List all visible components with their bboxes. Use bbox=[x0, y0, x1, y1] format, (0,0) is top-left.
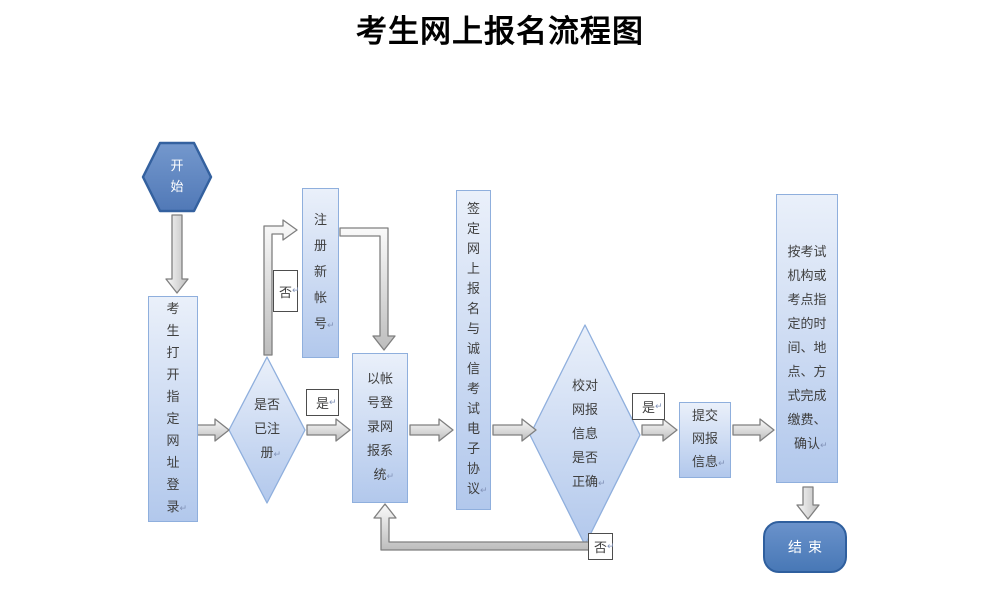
arrow-start-to-open-site bbox=[166, 215, 188, 293]
arrow-yes-to-login bbox=[307, 419, 350, 441]
edge-label-yes-registered: 是↵ bbox=[306, 389, 339, 416]
edge-label-yes-check: 是↵ bbox=[632, 393, 665, 420]
arrow-sign-to-check bbox=[493, 419, 536, 441]
arrow-pay-to-end bbox=[797, 487, 819, 519]
arrow-register-new-to-login bbox=[340, 228, 395, 350]
node-pay-confirm: 按考试机构或考点指定的时间、地点、方式完成缴费、确认↵ bbox=[776, 194, 838, 483]
arrow-open-site-to-registered bbox=[197, 419, 229, 441]
start-node-label: 开始 bbox=[168, 156, 186, 198]
end-node-label: 结束 bbox=[782, 537, 828, 557]
end-node: 结束 bbox=[763, 521, 847, 573]
node-register-new-label: 注册新帐号↵ bbox=[313, 208, 328, 339]
edge-label-no-check: 否↵ bbox=[588, 533, 613, 560]
arrow-submit-to-pay bbox=[733, 419, 774, 441]
node-pay-confirm-label: 按考试机构或考点指定的时间、地点、方式完成缴费、确认↵ bbox=[786, 241, 828, 458]
node-submit-info: 提交网报信息↵ bbox=[679, 402, 731, 478]
decision-check-info-label: 校对网报信息是否正确↵ bbox=[569, 375, 601, 496]
node-open-site-label: 考生打开指定网址登录↵ bbox=[166, 299, 181, 520]
node-open-site: 考生打开指定网址登录↵ bbox=[148, 296, 198, 522]
arrow-login-to-sign bbox=[410, 419, 453, 441]
node-sign-agreement: 签定网上报名与诚信考试电子协议↵ bbox=[456, 190, 491, 510]
edge-label-no-registered: 否↵ bbox=[273, 270, 298, 312]
node-register-new: 注册新帐号↵ bbox=[302, 188, 339, 358]
node-sign-agreement-label: 签定网上报名与诚信考试电子协议↵ bbox=[466, 200, 481, 501]
node-submit-info-label: 提交网报信息↵ bbox=[691, 405, 719, 476]
node-login-system-label: 以帐号登录网报系统↵ bbox=[366, 368, 394, 489]
flowchart-canvas: 考生网上报名流程图 bbox=[0, 0, 1000, 589]
arrow-check-no-back-to-login bbox=[374, 504, 600, 550]
decision-registered-label: 是否已注册↵ bbox=[252, 394, 282, 467]
arrow-check-yes-to-submit bbox=[642, 419, 677, 441]
node-login-system: 以帐号登录网报系统↵ bbox=[352, 353, 408, 503]
